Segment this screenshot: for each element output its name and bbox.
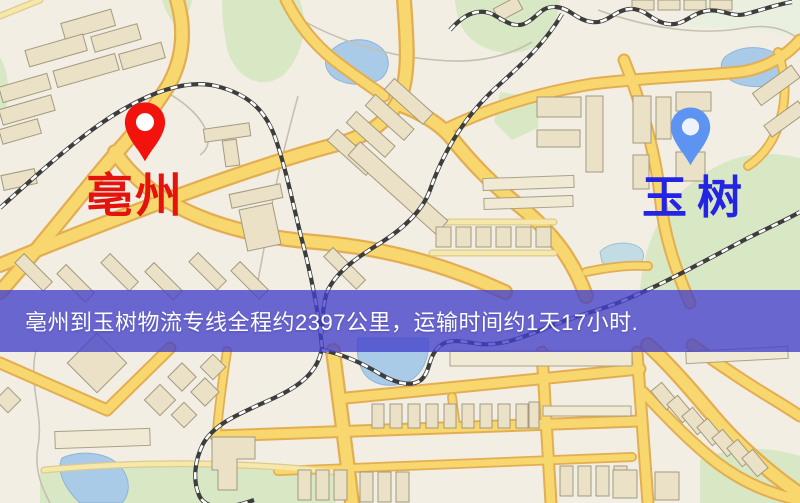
origin-pin-icon[interactable] (122, 98, 168, 168)
origin-label: 亳州 (86, 174, 184, 221)
destination-label: 玉树 (642, 176, 752, 221)
route-info-banner: 亳州到玉树物流专线全程约2397公里，运输时间约1天17小时. (0, 290, 800, 352)
map-canvas[interactable]: 亳州 玉树 亳州到玉树物流专线全程约2397公里，运输时间约1天17小时. (0, 0, 800, 503)
route-info-text: 亳州到玉树物流专线全程约2397公里，运输时间约1天17小时. (0, 305, 638, 337)
basemap (0, 0, 800, 503)
destination-pin-icon[interactable] (668, 104, 713, 171)
